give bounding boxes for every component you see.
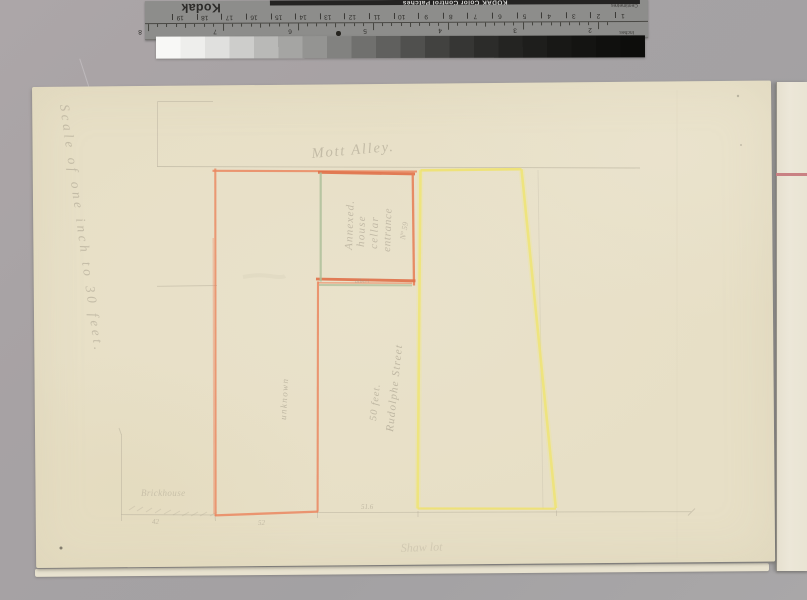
svg-text:51.6: 51.6 bbox=[361, 503, 374, 511]
svg-text:50 feet.: 50 feet. bbox=[368, 383, 383, 421]
svg-text:house: house bbox=[355, 215, 368, 247]
svg-text:Mott Alley.: Mott Alley. bbox=[310, 139, 395, 162]
svg-text:albert: albert bbox=[355, 278, 370, 285]
svg-text:Brickhouse: Brickhouse bbox=[141, 488, 186, 498]
svg-text:Shaw lot: Shaw lot bbox=[401, 539, 444, 554]
svg-text:42: 42 bbox=[152, 518, 160, 526]
svg-text:Scale of one inch to 30 feet.: Scale of one inch to 30 feet. bbox=[57, 103, 107, 354]
svg-text:unknown: unknown bbox=[278, 377, 290, 420]
svg-text:entrance: entrance bbox=[381, 208, 395, 252]
svg-text:Rudolphe Street: Rudolphe Street bbox=[384, 343, 405, 433]
svg-text:Nº 59: Nº 59 bbox=[398, 221, 410, 241]
svg-text:52: 52 bbox=[258, 519, 266, 527]
svg-text:cellar: cellar bbox=[368, 216, 381, 249]
